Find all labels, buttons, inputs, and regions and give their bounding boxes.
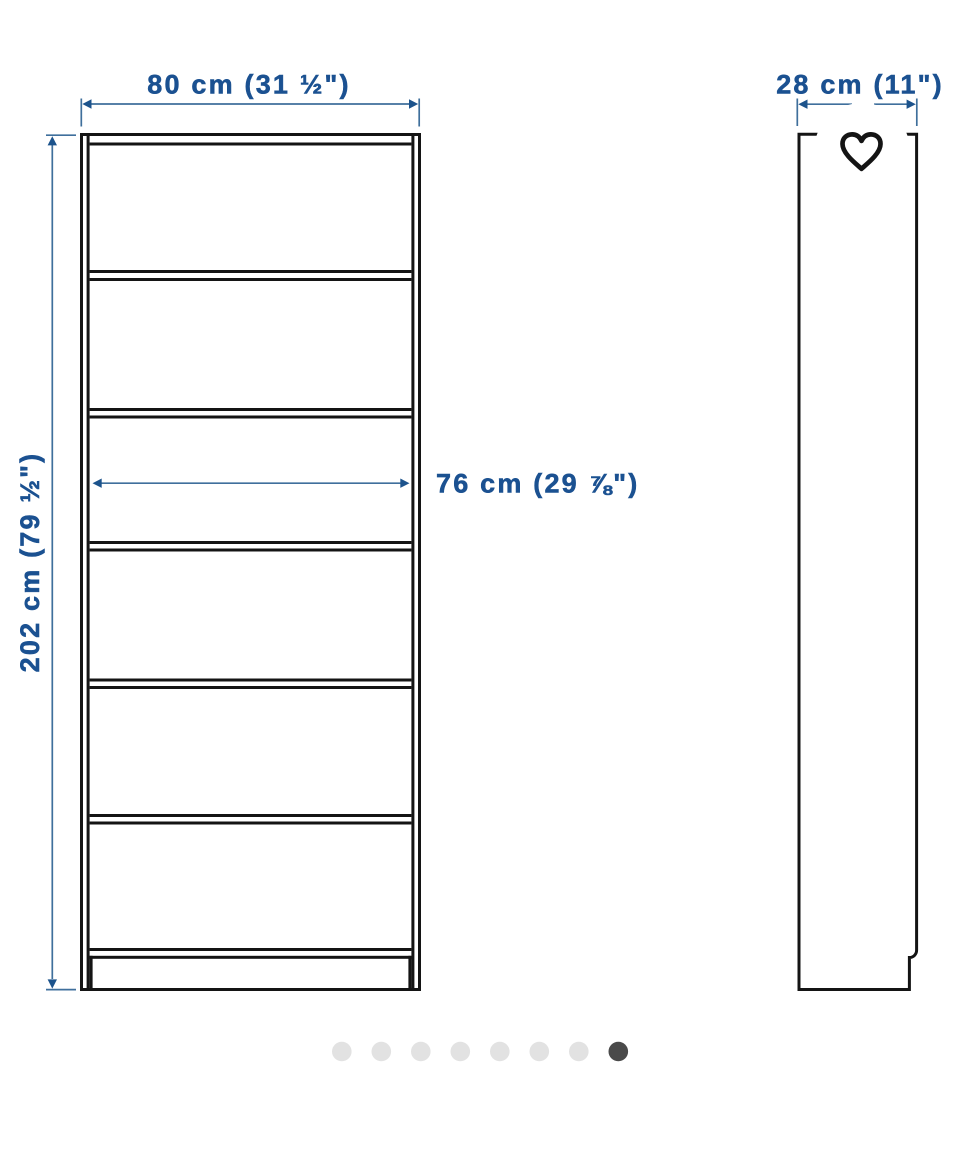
svg-text:202 cm (79 ½"): 202 cm (79 ½") [15, 452, 45, 673]
svg-text:76 cm (29 ⅞"): 76 cm (29 ⅞") [436, 469, 640, 499]
svg-text:80 cm (31 ½"): 80 cm (31 ½") [147, 70, 351, 100]
svg-text:28 cm (11"): 28 cm (11") [776, 70, 944, 100]
